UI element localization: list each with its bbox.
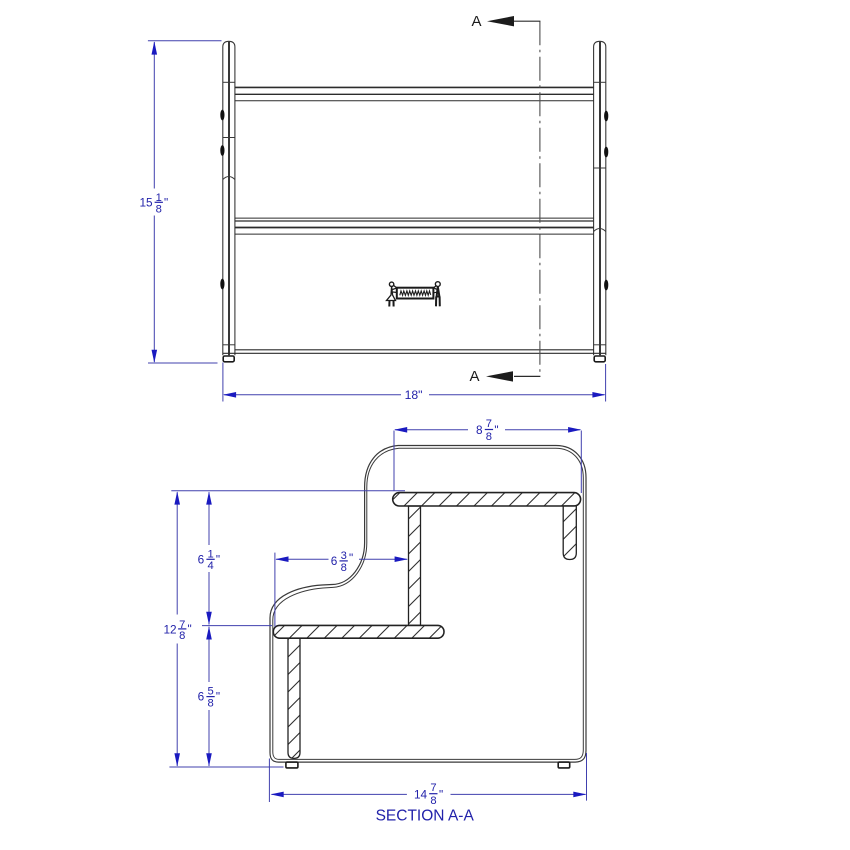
svg-text:8: 8 <box>476 423 483 437</box>
svg-text:12: 12 <box>163 622 176 636</box>
svg-text:": " <box>439 787 443 801</box>
svg-text:14: 14 <box>414 788 428 802</box>
svg-text:6: 6 <box>198 690 205 704</box>
svg-text:": " <box>164 196 168 210</box>
svg-text:8: 8 <box>430 795 436 807</box>
svg-text:": " <box>216 690 220 704</box>
svg-text:5: 5 <box>207 686 213 698</box>
svg-text:1: 1 <box>207 548 213 560</box>
svg-text:A: A <box>472 13 482 30</box>
svg-text:3: 3 <box>341 550 347 562</box>
svg-text:6: 6 <box>198 552 205 566</box>
svg-text:": " <box>349 551 353 565</box>
svg-text:": " <box>216 552 220 566</box>
svg-text:SECTION A-A: SECTION A-A <box>376 807 475 824</box>
svg-text:6: 6 <box>331 554 338 568</box>
svg-text:7: 7 <box>430 782 436 794</box>
svg-text:4: 4 <box>207 560 213 572</box>
svg-text:15: 15 <box>139 196 153 210</box>
svg-text:8: 8 <box>341 562 347 574</box>
svg-text:": " <box>188 622 192 636</box>
svg-text:8: 8 <box>156 204 162 216</box>
svg-text:18": 18" <box>405 388 423 402</box>
svg-text:A: A <box>470 368 480 385</box>
svg-text:8: 8 <box>179 630 185 642</box>
svg-text:8: 8 <box>207 698 213 710</box>
svg-text:7: 7 <box>486 418 492 430</box>
svg-text:8: 8 <box>486 431 492 443</box>
svg-text:": " <box>494 423 498 437</box>
